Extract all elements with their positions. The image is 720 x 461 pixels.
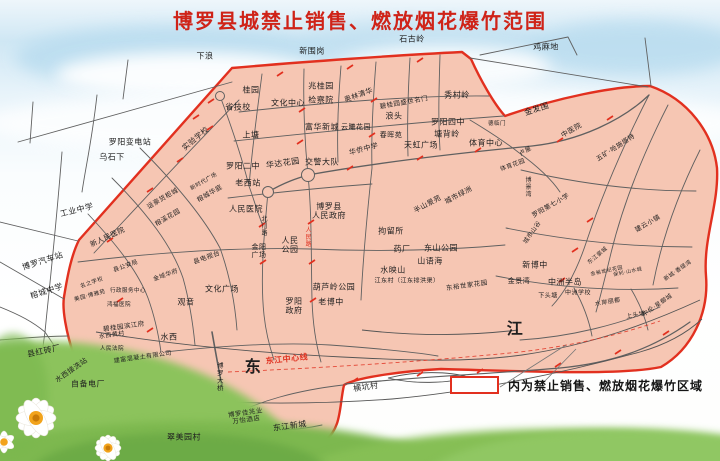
page-title: 博罗县城禁止销售、燃放烟花爆竹范围 (0, 5, 720, 34)
daffodil-flower (15, 397, 58, 440)
map-container: 下浪新围岗石古岭鸡麻地金发围罗阳变电站乌石下工业中学博罗汽车站榕城中学县红砖厂水… (0, 0, 720, 461)
daffodil-flower (0, 431, 16, 453)
legend-swatch (450, 376, 499, 394)
daffodil-flower (94, 434, 122, 461)
legend-label: 内为禁止销售、燃放烟花爆竹区域 (508, 377, 703, 394)
legend: 内为禁止销售、燃放烟花爆竹区域 (450, 376, 703, 394)
